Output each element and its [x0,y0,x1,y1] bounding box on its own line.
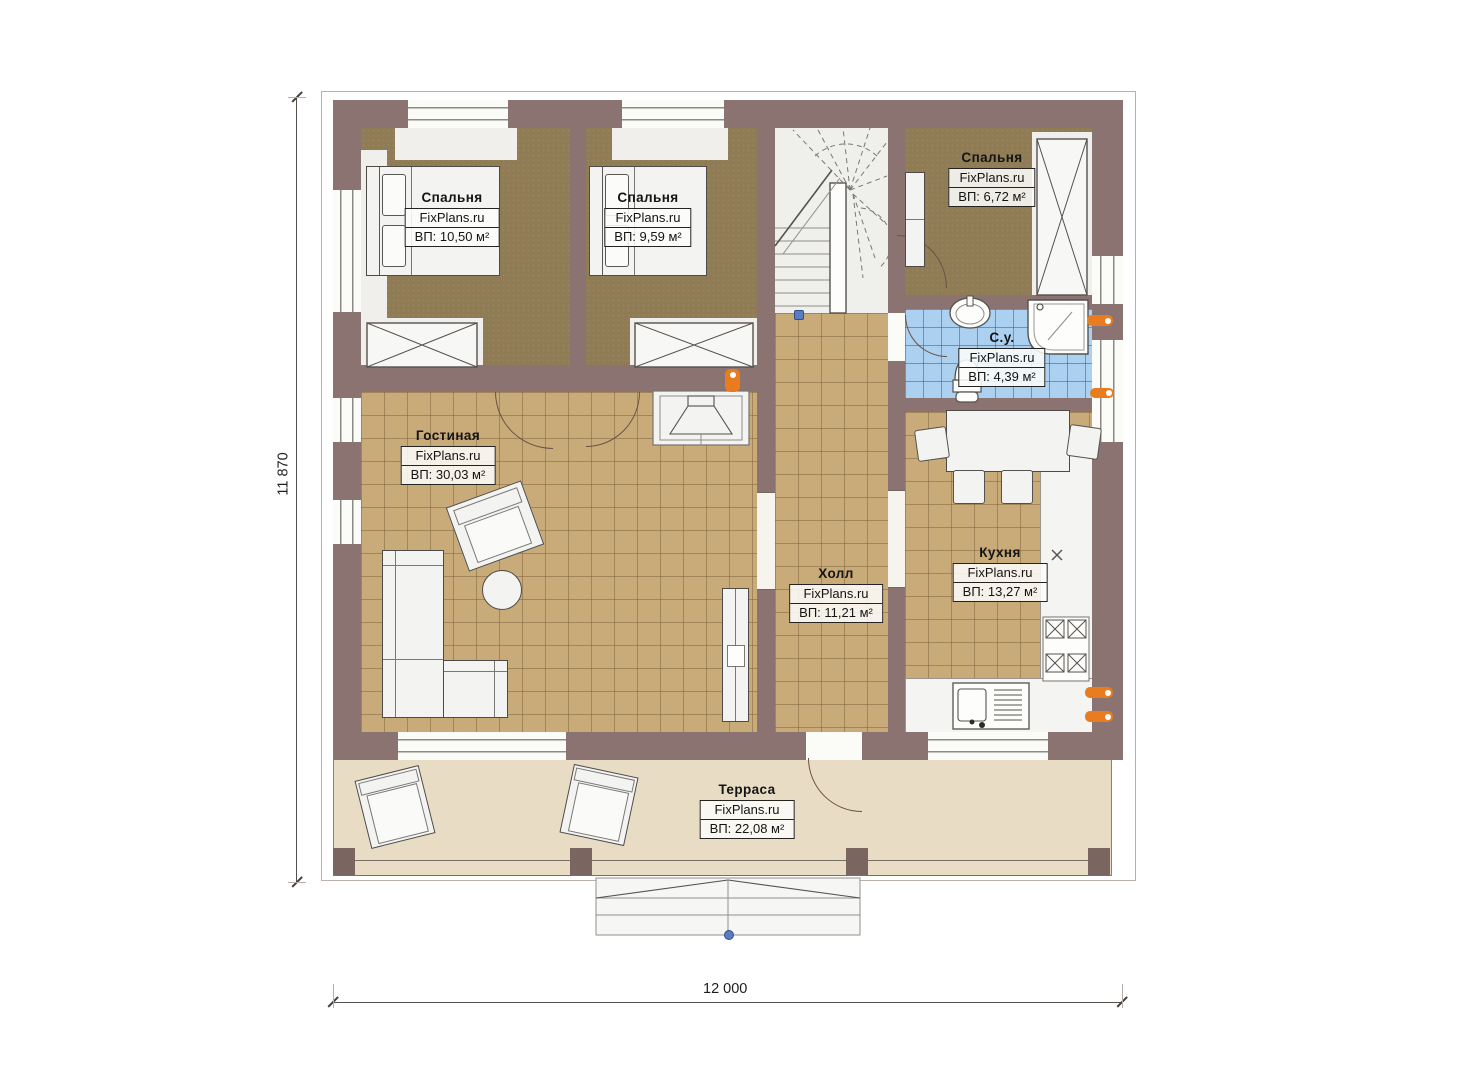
window-bottom-kitchen [928,732,1048,760]
floor-plan: Спальня FixPlans.ru ВП: 10,50 м² Спальня… [0,0,1474,1080]
room-area: ВП: 6,72 м² [949,188,1034,206]
dimension-label-horizontal: 12 000 [703,981,747,997]
radiator-icon [1087,315,1113,326]
window-top-bedroom2 [622,100,724,128]
brand-watermark: FixPlans.ru [402,447,495,466]
brand-watermark: FixPlans.ru [605,209,690,228]
bedroom2-wardrobe [634,322,754,368]
room-area: ВП: 13,27 м² [954,583,1047,601]
wall-living-hall [757,128,775,732]
counter-cross-mark [1050,548,1064,562]
bedroom2-window-recess [612,128,728,160]
terrace-post [333,848,355,875]
window-left-living-2 [333,500,361,544]
living-hall-opening [757,492,775,590]
kitchen-sink [952,682,1030,730]
room-label-bathroom: С.у. FixPlans.ru ВП: 4,39 м² [958,330,1045,387]
room-name: Спальня [405,190,500,205]
room-label-bedroom2: Спальня FixPlans.ru ВП: 9,59 м² [604,190,691,247]
dimension-line-vertical [296,97,297,883]
room-area: ВП: 9,59 м² [605,228,690,246]
dimension-line-horizontal [333,1002,1123,1003]
room-name: Спальня [948,150,1035,165]
room-area: ВП: 4,39 м² [959,368,1044,386]
washbasin [948,296,992,330]
extension-line [333,984,334,1008]
dining-chair [1001,470,1033,504]
window-left-living-1 [333,398,361,442]
dining-chair [953,470,985,504]
brand-watermark: FixPlans.ru [701,801,794,820]
terrace-post [1088,848,1110,875]
extension-line [288,97,306,98]
sofa-section-vertical [382,550,444,718]
radiator-icon [1090,388,1114,398]
window-left-bedroom1 [333,190,361,312]
room-label-kitchen: Кухня FixPlans.ru ВП: 13,27 м² [953,545,1048,602]
living-cabinet [722,588,749,722]
dining-chair [1066,424,1102,460]
stove [1042,616,1090,682]
radiator-icon [1085,687,1113,698]
room-label-hall: Холл FixPlans.ru ВП: 11,21 м² [789,566,883,623]
brand-watermark: FixPlans.ru [954,564,1047,583]
window-right-bathroom [1092,256,1123,304]
wall-bedrooms-living [361,365,757,392]
brand-watermark: FixPlans.ru [790,585,882,604]
room-area: ВП: 22,08 м² [701,820,794,838]
brand-watermark: FixPlans.ru [949,169,1034,188]
bedroom1-window-recess [395,128,517,160]
fireplace [652,390,750,446]
bedroom3-wardrobe [1036,138,1088,296]
stair-marker-dot [794,310,804,320]
room-name: Спальня [604,190,691,205]
room-name: Гостиная [401,428,496,443]
bathroom-door-gap [888,313,905,361]
room-name: С.у. [958,330,1045,345]
terrace-door-gap [806,732,862,760]
dining-table [946,410,1070,472]
room-name: Холл [789,566,883,581]
extension-line [1122,984,1123,1008]
window-bottom-living [398,732,566,760]
terrace-rail [333,860,1110,876]
room-area: ВП: 11,21 м² [790,604,882,622]
staircase [775,128,888,313]
room-area: ВП: 10,50 м² [406,228,499,246]
brand-watermark: FixPlans.ru [959,349,1044,368]
boiler-icon [725,369,740,392]
room-label-bedroom3: Спальня FixPlans.ru ВП: 6,72 м² [948,150,1035,207]
room-label-bedroom1: Спальня FixPlans.ru ВП: 10,50 м² [405,190,500,247]
hall-floor [775,313,888,732]
room-name: Терраса [700,782,795,797]
bedroom3-nightstand [905,172,925,267]
bedroom1-wardrobe [366,322,478,368]
room-name: Кухня [953,545,1048,560]
wall-hall-east [888,128,905,732]
dining-chair [914,426,950,462]
entrance-steps [596,878,860,936]
dimension-label-vertical: 11 870 [276,452,292,495]
room-label-terrace: Терраса FixPlans.ru ВП: 22,08 м² [700,782,795,839]
extension-line [288,882,306,883]
steps-marker-dot [724,930,734,940]
hall-kitchen-opening [888,490,905,588]
room-label-living: Гостиная FixPlans.ru ВП: 30,03 м² [401,428,496,485]
wall-bedroom1-bedroom2 [570,128,586,368]
terrace-post [570,848,592,875]
coffee-table [482,570,522,610]
terrace-post [846,848,868,875]
room-area: ВП: 30,03 м² [402,466,495,484]
brand-watermark: FixPlans.ru [406,209,499,228]
radiator-icon [1085,711,1113,722]
window-top-bedroom1 [408,100,508,128]
